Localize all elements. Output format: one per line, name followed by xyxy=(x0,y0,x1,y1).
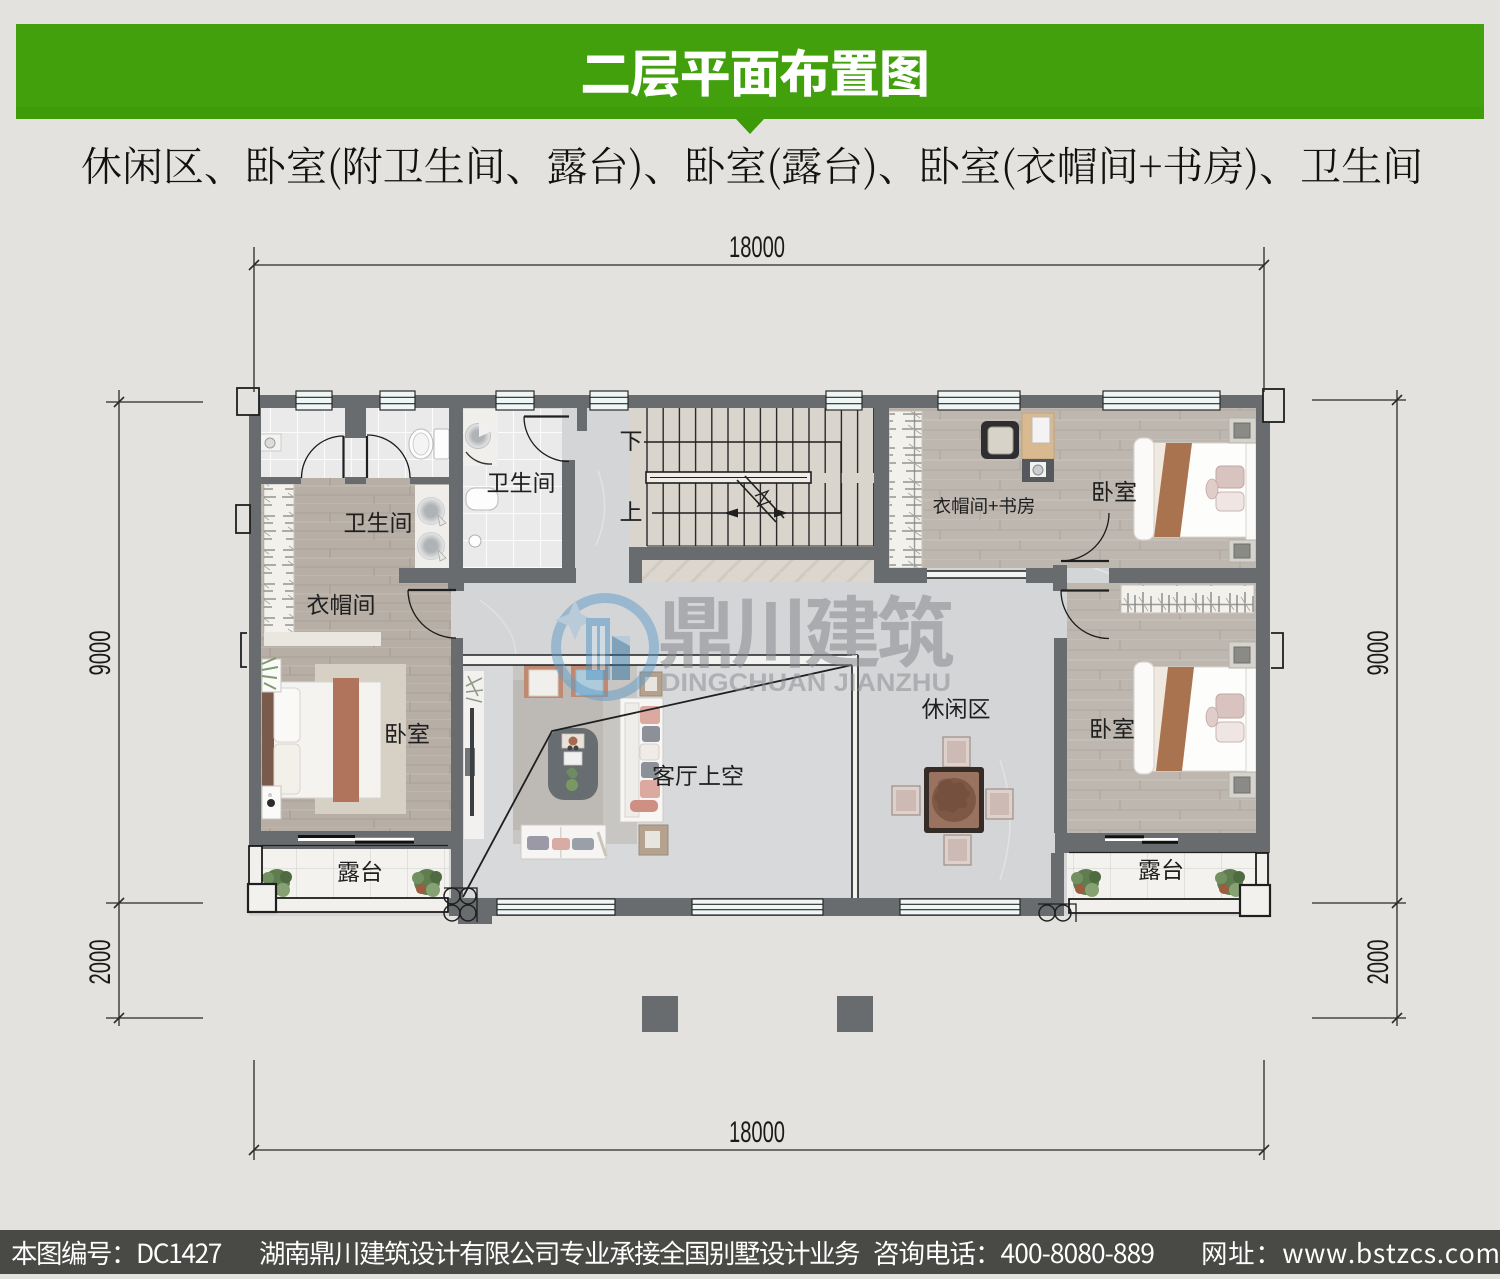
svg-text:2000: 2000 xyxy=(1362,940,1395,985)
svg-text:18000: 18000 xyxy=(729,231,785,264)
svg-text:DINGCHUAN JIANZHU: DINGCHUAN JIANZHU xyxy=(661,669,951,697)
svg-text:9000: 9000 xyxy=(84,631,117,676)
svg-text:2000: 2000 xyxy=(84,940,117,985)
svg-text:18000: 18000 xyxy=(729,1116,785,1149)
svg-text:9000: 9000 xyxy=(1362,631,1395,676)
